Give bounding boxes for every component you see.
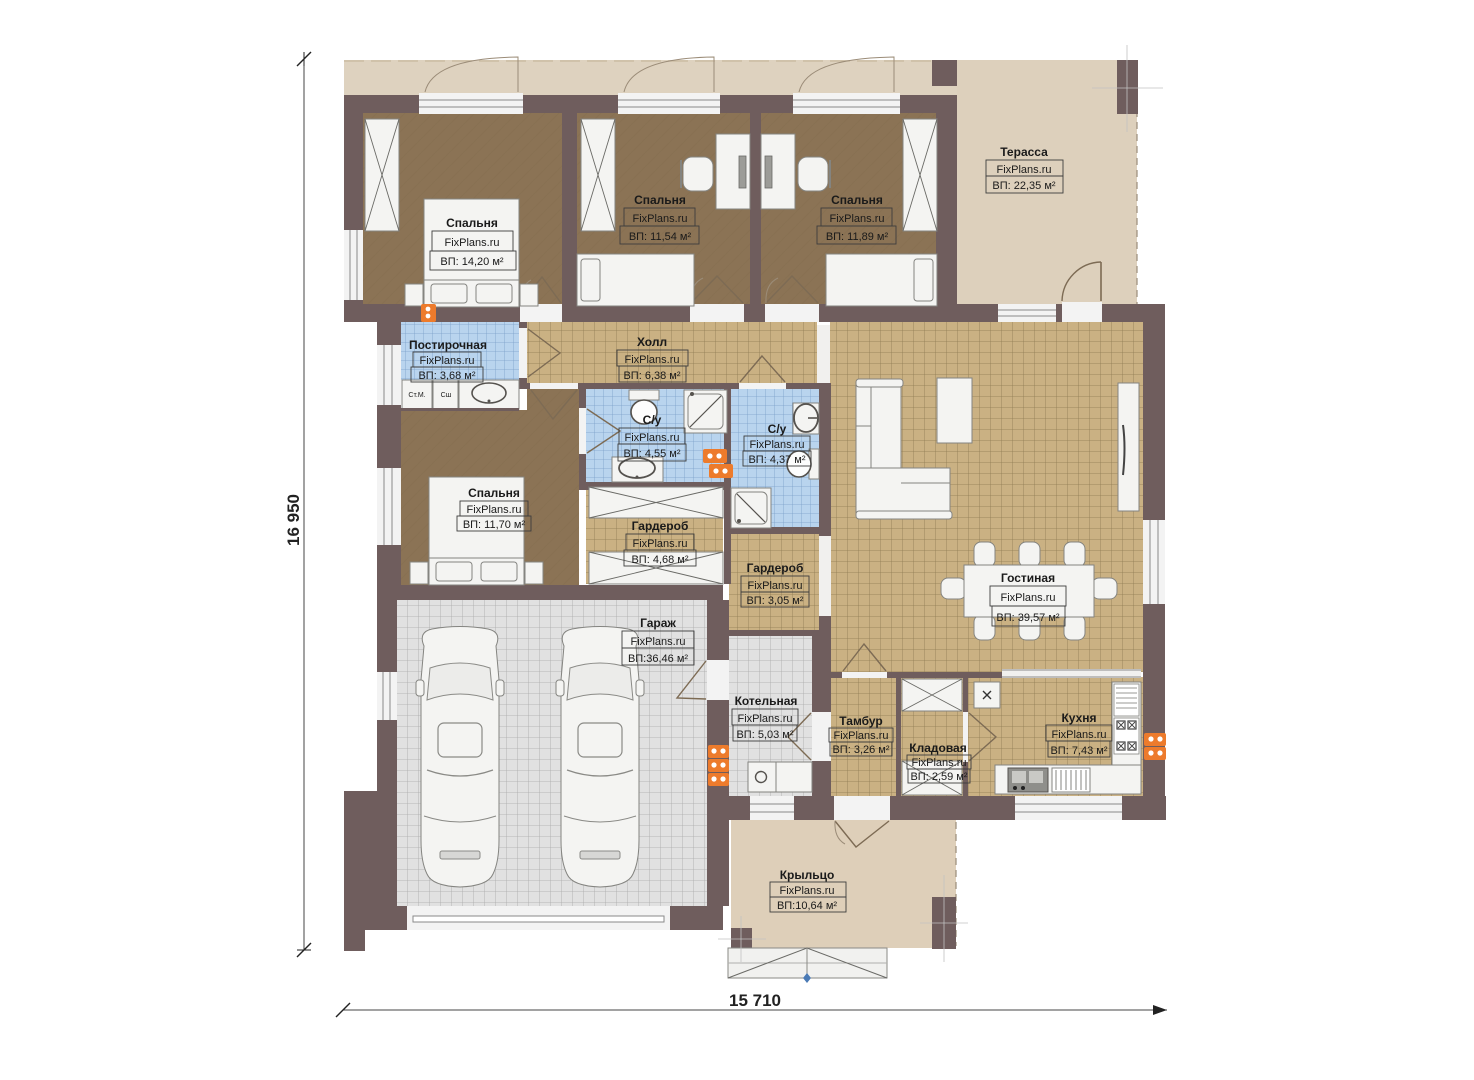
svg-text:Гардероб: Гардероб (632, 519, 689, 533)
svg-text:Гараж: Гараж (640, 616, 676, 630)
svg-text:FixPlans.ru: FixPlans.ru (737, 713, 792, 725)
svg-text:ВП: 22,35 м²: ВП: 22,35 м² (992, 180, 1056, 192)
svg-text:FixPlans.ru: FixPlans.ru (747, 580, 802, 592)
svg-text:FixPlans.ru: FixPlans.ru (829, 213, 884, 225)
svg-text:ВП:36,46 м²: ВП:36,46 м² (628, 653, 688, 665)
svg-text:FixPlans.ru: FixPlans.ru (632, 213, 687, 225)
svg-text:ВП: 3,68 м²: ВП: 3,68 м² (418, 370, 475, 382)
svg-text:Котельная: Котельная (735, 694, 798, 708)
svg-text:FixPlans.ru: FixPlans.ru (624, 354, 679, 366)
svg-text:ВП: 11,89 м²: ВП: 11,89 м² (826, 231, 889, 243)
svg-text:Постирочная: Постирочная (409, 338, 487, 352)
svg-text:FixPlans.ru: FixPlans.ru (1051, 729, 1106, 741)
svg-text:FixPlans.ru: FixPlans.ru (466, 504, 521, 516)
svg-text:FixPlans.ru: FixPlans.ru (630, 636, 685, 648)
svg-text:Тамбур: Тамбур (839, 714, 883, 728)
svg-text:15 710: 15 710 (729, 991, 781, 1010)
svg-text:С/у: С/у (643, 413, 662, 427)
svg-text:Спальня: Спальня (446, 216, 498, 230)
svg-text:ВП: 6,38 м²: ВП: 6,38 м² (623, 370, 680, 382)
svg-text:Спальня: Спальня (831, 193, 883, 207)
svg-text:FixPlans.ru: FixPlans.ru (444, 237, 499, 249)
svg-text:Спальня: Спальня (634, 193, 686, 207)
svg-text:FixPlans.ru: FixPlans.ru (911, 757, 966, 769)
svg-text:ВП: 4,55 м²: ВП: 4,55 м² (623, 448, 680, 460)
svg-text:FixPlans.ru: FixPlans.ru (996, 164, 1051, 176)
svg-text:FixPlans.ru: FixPlans.ru (749, 439, 804, 451)
svg-text:ВП: 11,54 м²: ВП: 11,54 м² (629, 231, 692, 243)
svg-text:FixPlans.ru: FixPlans.ru (833, 730, 888, 742)
svg-text:Спальня: Спальня (468, 486, 520, 500)
svg-text:Кладовая: Кладовая (909, 741, 966, 755)
svg-text:Крыльцо: Крыльцо (780, 868, 835, 882)
svg-text:FixPlans.ru: FixPlans.ru (632, 538, 687, 550)
svg-text:Сш: Сш (441, 392, 452, 399)
svg-text:Кухня: Кухня (1061, 711, 1096, 725)
svg-text:Гостиная: Гостиная (1001, 571, 1055, 585)
svg-text:ВП: 5,03 м²: ВП: 5,03 м² (736, 729, 793, 741)
svg-text:ВП:10,64 м²: ВП:10,64 м² (777, 900, 837, 912)
svg-text:Гардероб: Гардероб (747, 561, 804, 575)
svg-text:Терасса: Терасса (1000, 145, 1048, 159)
svg-text:Ст.М.: Ст.М. (408, 392, 425, 399)
svg-text:ВП: 3,05 м²: ВП: 3,05 м² (746, 595, 803, 607)
svg-text:FixPlans.ru: FixPlans.ru (624, 432, 679, 444)
svg-text:FixPlans.ru: FixPlans.ru (779, 885, 834, 897)
svg-text:16 950: 16 950 (284, 494, 303, 546)
svg-text:ВП: 7,43 м²: ВП: 7,43 м² (1050, 745, 1107, 757)
svg-text:ВП: 4,37 м²: ВП: 4,37 м² (748, 454, 805, 466)
svg-text:Холл: Холл (637, 335, 667, 349)
svg-text:ВП: 4,68 м²: ВП: 4,68 м² (631, 554, 688, 566)
svg-text:ВП: 14,20 м²: ВП: 14,20 м² (440, 256, 504, 268)
svg-text:FixPlans.ru: FixPlans.ru (1000, 592, 1055, 604)
svg-text:FixPlans.ru: FixPlans.ru (419, 355, 474, 367)
svg-text:С/у: С/у (768, 422, 787, 436)
svg-text:ВП: 39,57 м²: ВП: 39,57 м² (996, 612, 1060, 624)
svg-text:ВП: 11,70 м²: ВП: 11,70 м² (463, 519, 526, 531)
svg-text:ВП: 2,59 м²: ВП: 2,59 м² (910, 771, 967, 783)
svg-text:ВП: 3,26 м²: ВП: 3,26 м² (832, 744, 889, 756)
